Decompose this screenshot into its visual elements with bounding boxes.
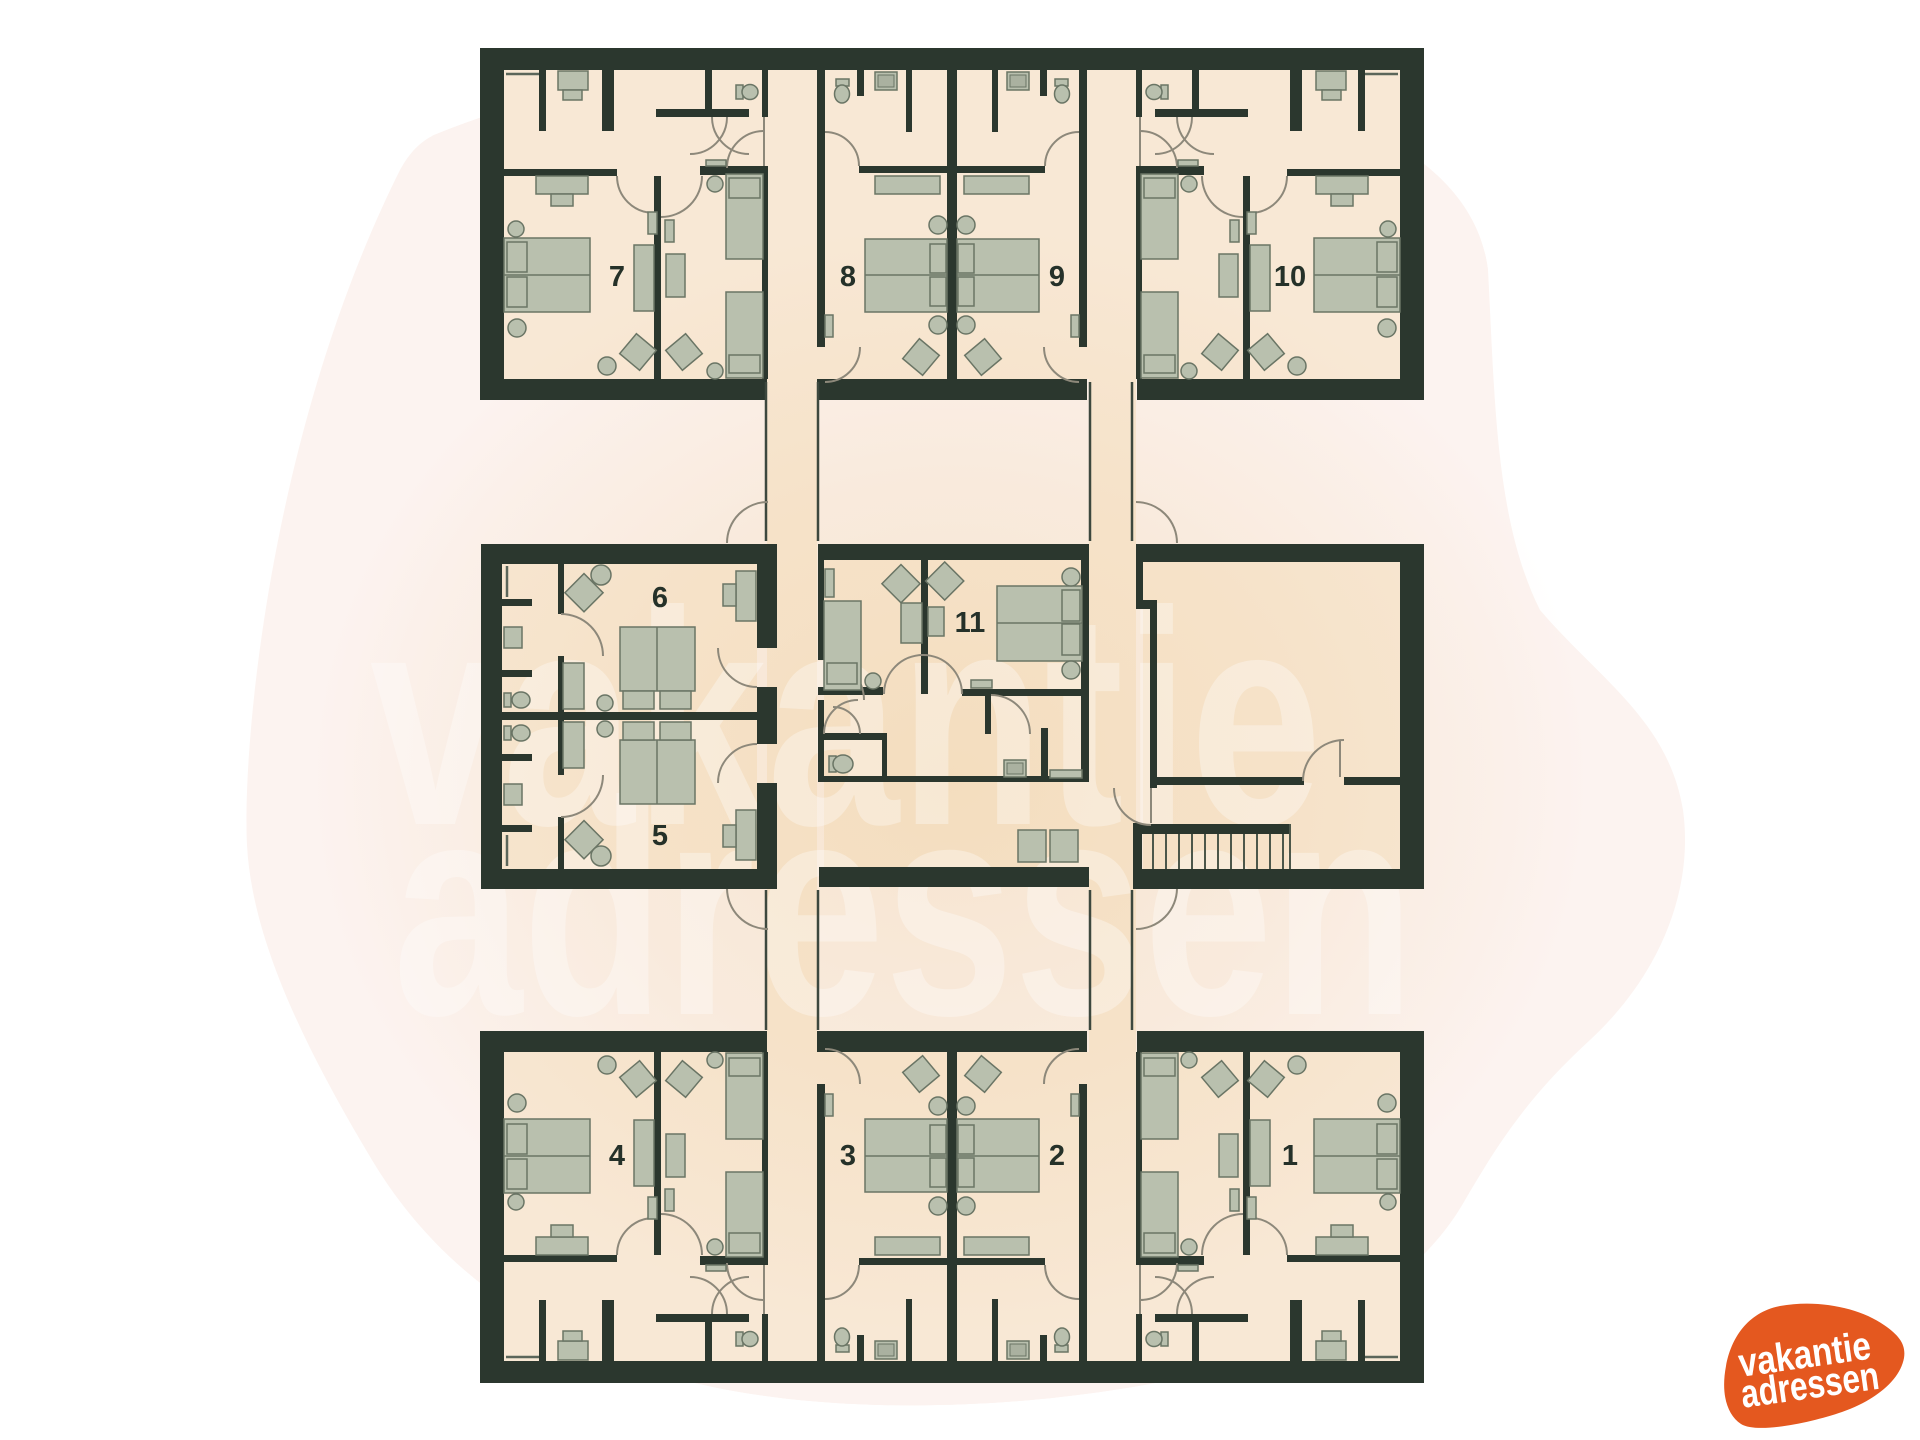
svg-text:1: 1 [1282, 1140, 1298, 1172]
svg-text:11: 11 [955, 607, 986, 639]
svg-text:7: 7 [609, 261, 625, 293]
svg-text:4: 4 [609, 1140, 625, 1172]
svg-text:10: 10 [1274, 261, 1306, 293]
svg-text:3: 3 [840, 1140, 856, 1172]
svg-text:2: 2 [1049, 1140, 1065, 1172]
svg-text:5: 5 [652, 820, 668, 852]
svg-text:adressen: adressen [393, 738, 1415, 1079]
svg-text:9: 9 [1049, 261, 1065, 293]
svg-text:6: 6 [652, 582, 668, 614]
svg-text:8: 8 [840, 261, 856, 293]
